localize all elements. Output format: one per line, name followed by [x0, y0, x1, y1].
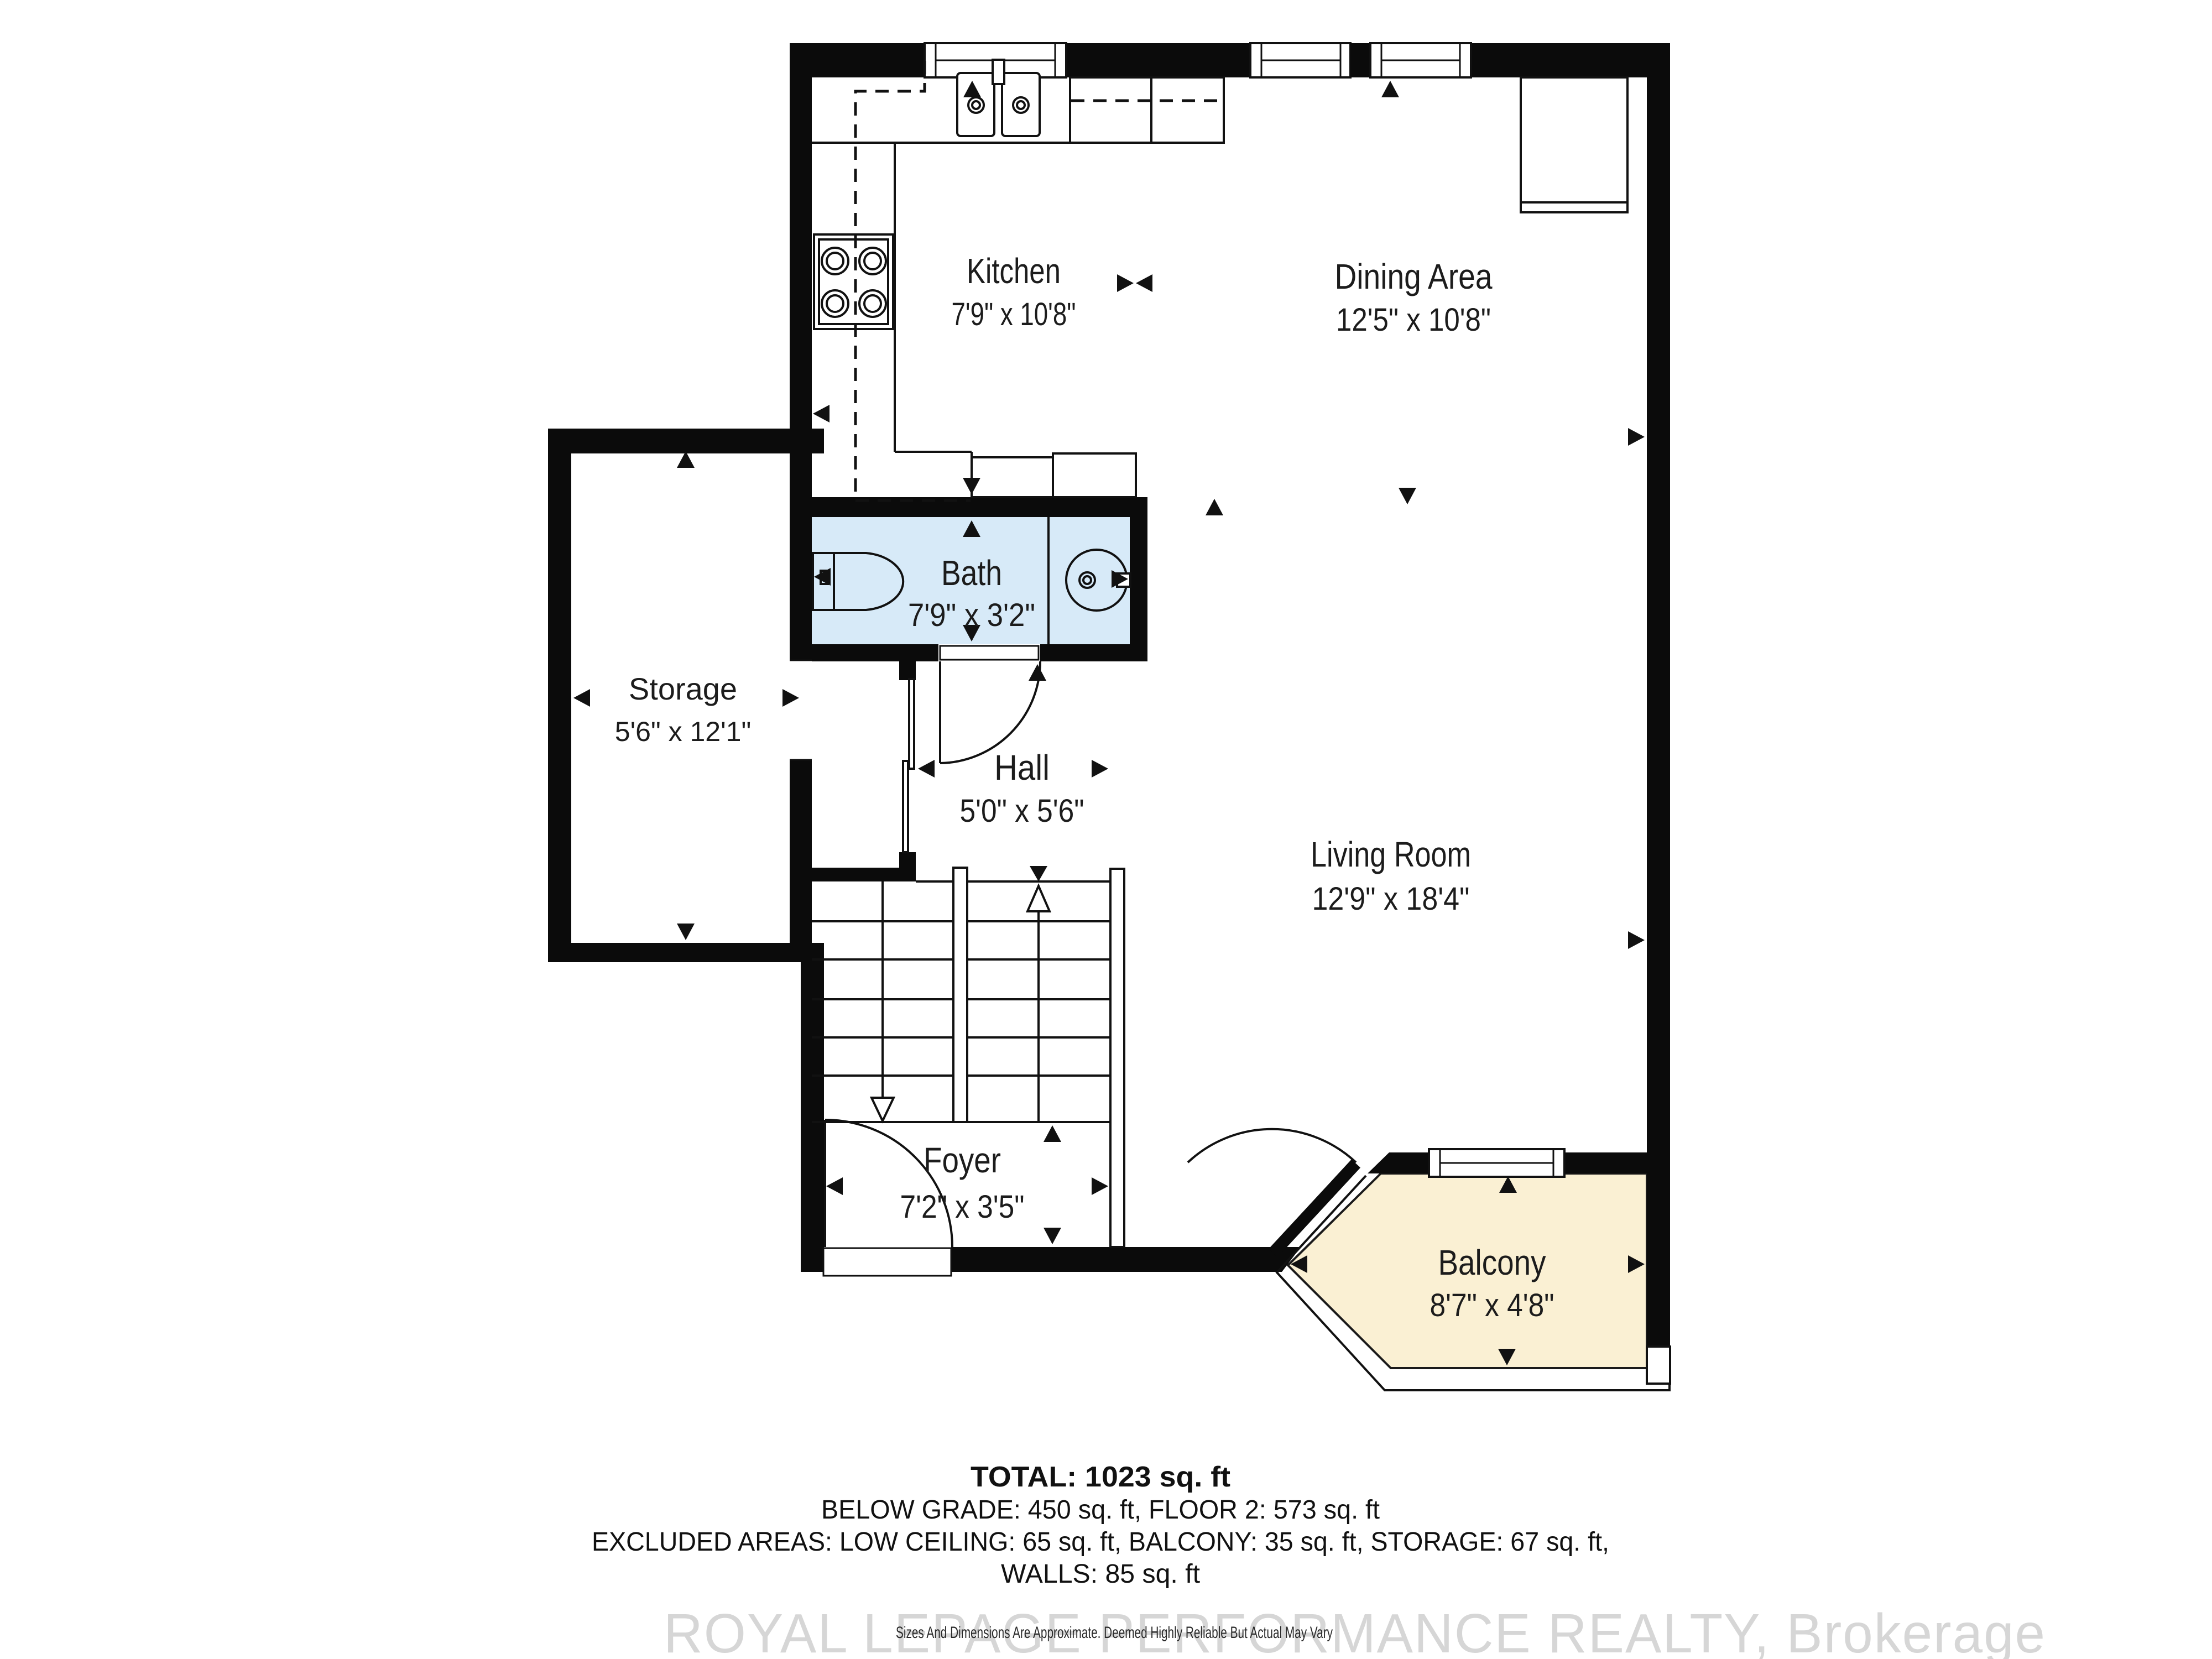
dim-arrow-bowtie-left — [1136, 274, 1152, 292]
summary-excluded: EXCLUDED AREAS: LOW CEILING: 65 sq. ft, … — [592, 1527, 1609, 1557]
room-label-kitchen: Kitchen — [967, 251, 1061, 291]
wall-bath-bottom-left — [790, 644, 938, 661]
stair-railing — [1110, 869, 1124, 1247]
summary-walls: WALLS: 85 sq. ft — [1001, 1559, 1200, 1589]
room-dims-bath: 7'9" x 3'2" — [908, 597, 1035, 633]
room-label-bath: Bath — [941, 553, 1002, 593]
summary-below-grade: BELOW GRADE: 450 sq. ft, FLOOR 2: 573 sq… — [821, 1495, 1380, 1525]
floor-plan: Kitchen 7'9" x 10'8" Dining Area 12'5" x… — [0, 0, 2212, 1659]
dim-arrow-hall-left — [918, 760, 935, 778]
room-label-living: Living Room — [1311, 834, 1471, 874]
window-balcony-icon — [1429, 1149, 1564, 1177]
wall-bath-right — [1130, 497, 1147, 661]
room-label-storage: Storage — [629, 671, 737, 706]
brokerage-watermark: ROYAL LEPAGE PERFORMANCE REALTY, Brokera… — [664, 1603, 2046, 1659]
dim-arrow-hall-down — [1030, 866, 1047, 881]
room-dims-hall: 5'0" x 5'6" — [960, 793, 1084, 829]
dim-arrow-kitchen-left — [813, 405, 830, 422]
stair-stringer — [953, 868, 967, 1122]
room-label-hall: Hall — [994, 748, 1050, 787]
dim-arrow-bowtie-right — [1117, 274, 1134, 292]
dim-arrow-dining-down — [1399, 488, 1416, 504]
wall-storage-right-lower — [790, 760, 812, 943]
wall-bath-bottom-right — [1040, 644, 1147, 661]
dim-arrow-hall-right — [1092, 760, 1108, 778]
stairs-down-arrow-icon — [872, 1098, 894, 1121]
summary-total: TOTAL: 1023 sq. ft — [971, 1461, 1230, 1493]
dim-arrow-storage-up — [677, 451, 695, 468]
dim-arrow-foyer-down — [1044, 1228, 1061, 1244]
wall-kitchen-left — [790, 43, 812, 453]
dim-arrow-living-right — [1628, 931, 1645, 949]
wall-right — [1647, 43, 1670, 1347]
room-label-balcony: Balcony — [1438, 1243, 1546, 1282]
wall-foyer-left — [801, 962, 824, 1272]
wall-closet-stub-top — [899, 661, 916, 680]
wall-storage-bottom — [548, 943, 824, 962]
room-dims-balcony: 8'7" x 4'8" — [1430, 1287, 1554, 1323]
room-label-dining: Dining Area — [1335, 257, 1493, 296]
fridge-icon — [1521, 77, 1627, 212]
dim-arrow-foyer-up — [1044, 1125, 1061, 1142]
dim-arrow-storage-left — [573, 689, 590, 707]
dim-arrow-living-up — [1206, 499, 1223, 515]
sliding-door-icon — [903, 679, 914, 852]
disclaimer-text: Sizes And Dimensions Are Approximate. De… — [896, 1624, 1333, 1642]
wall-storage-top — [548, 429, 824, 453]
room-dims-foyer: 7'2" x 3'5" — [900, 1189, 1025, 1225]
dim-arrow-foyer-right — [1092, 1177, 1108, 1195]
storage-opening — [790, 660, 812, 760]
bath-door — [938, 644, 1040, 763]
wall-storage-left — [548, 429, 571, 962]
dim-arrow-hall-up — [1029, 664, 1046, 681]
wall-stairs-top — [812, 868, 916, 881]
area-summary: TOTAL: 1023 sq. ft BELOW GRADE: 450 sq. … — [592, 1461, 1609, 1589]
room-dims-storage: 5'6" x 12'1" — [615, 716, 751, 747]
window-dining-icon — [1250, 43, 1471, 77]
dim-arrow-foyer-left — [826, 1177, 843, 1195]
room-label-foyer: Foyer — [924, 1140, 1001, 1180]
room-dims-dining: 12'5" x 10'8" — [1336, 302, 1491, 338]
dim-arrow-dining-up — [1381, 81, 1399, 97]
dim-arrow-storage-down — [677, 924, 695, 940]
wall-foyer-bottom-stub — [801, 1247, 823, 1272]
room-dims-living: 12'9" x 18'4" — [1312, 881, 1470, 917]
room-dims-kitchen: 7'9" x 10'8" — [952, 296, 1076, 332]
wall-storage-right-upper — [790, 453, 812, 660]
stove-icon — [814, 234, 893, 329]
dim-arrow-dining-right — [1628, 428, 1645, 446]
stairs-up-arrow-icon — [1027, 886, 1050, 911]
wall-foyer-bottom — [951, 1247, 1301, 1272]
